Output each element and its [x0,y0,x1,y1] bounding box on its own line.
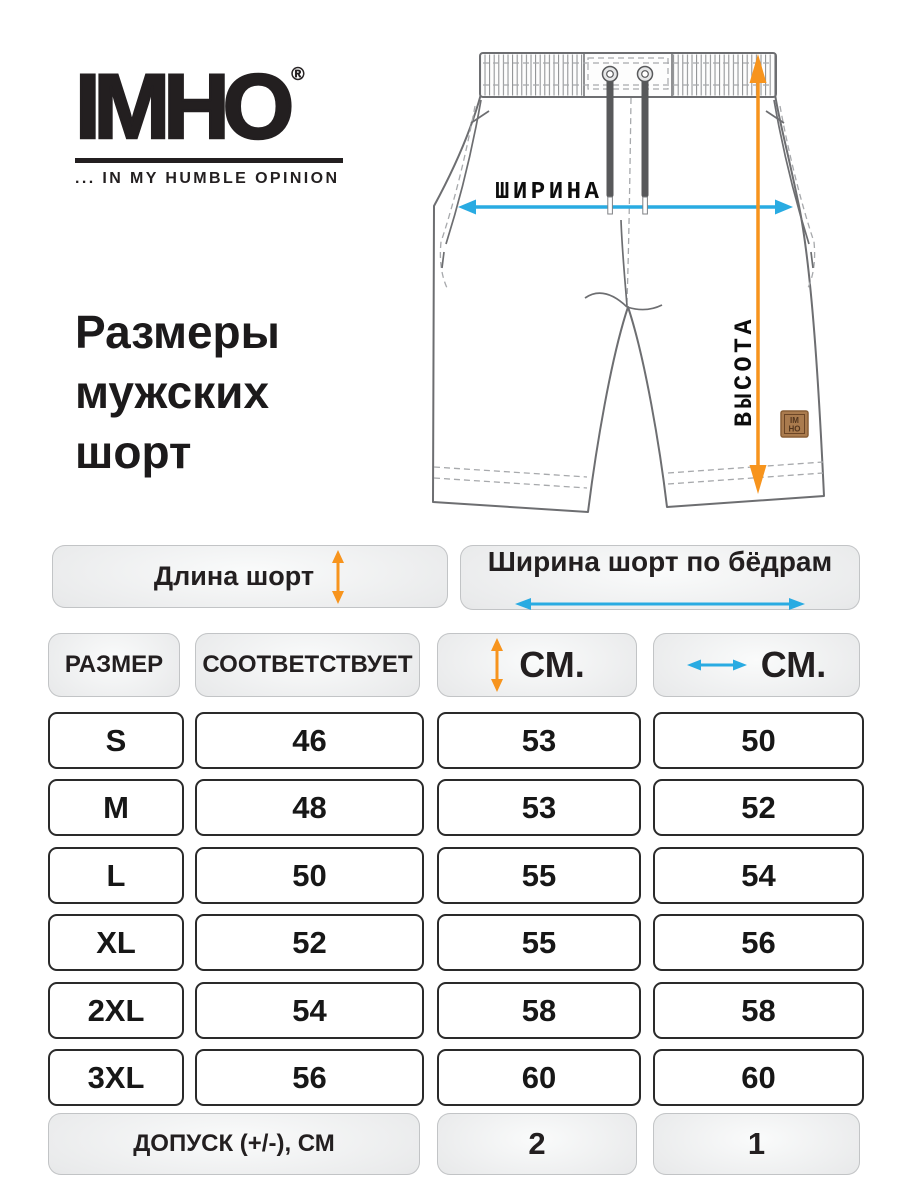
width-cm-cell: 52 [653,779,864,836]
patch-text: HO [789,425,801,434]
width-cm-cell: 56 [653,914,864,971]
corresponds-cell: 54 [195,982,424,1039]
corresponds-cell: 48 [195,779,424,836]
length-cm-cell: 58 [437,982,641,1039]
corresponds-cell: 46 [195,712,424,769]
tolerance-width-cell: 1 [653,1113,860,1175]
size-column-header: РАЗМЕР [48,633,180,697]
horizontal-arrow-icon [687,657,747,673]
width-cm-cell: 58 [653,982,864,1039]
size-cell: M [48,779,184,836]
waistband [480,53,776,97]
length-header-pill: Длина шорт [52,545,448,608]
length-cm-column-label: СМ. [519,644,585,686]
size-cell: XL [48,914,184,971]
drawstring-left [607,78,614,198]
logo-wordmark: IMHO® [75,64,345,151]
width-cm-column-label: СМ. [761,644,827,686]
length-cm-cell: 60 [437,1049,641,1106]
drawstring-right [642,78,649,198]
page-title: Размеры мужских шорт [75,302,280,482]
width-header-pill: Ширина шорт по бёдрам [460,545,860,610]
registered-mark: ® [291,64,304,84]
page-title-line: шорт [75,422,280,482]
corresponds-cell: 52 [195,914,424,971]
length-cm-cell: 55 [437,847,641,904]
tolerance-length-cell: 2 [437,1113,637,1175]
horizontal-arrow-icon [515,596,805,612]
height-label: ВЫСОТА [730,316,759,427]
tolerance-label: ДОПУСК (+/-), СМ [133,1130,335,1158]
width-label: ШИРИНА [495,179,602,206]
brand-patch: IM HO [781,411,808,437]
length-cm-column-header: СМ. [437,633,637,697]
page-title-line: мужских [75,362,280,422]
shorts-body-outline [433,94,824,512]
logo-tagline: ... IN MY HUMBLE OPINION [75,170,345,188]
page-title-line: Размеры [75,302,280,362]
width-cm-cell: 54 [653,847,864,904]
length-header-label: Длина шорт [154,561,314,592]
size-table: Длина шорт Ширина шорт по бёдрам РАЗМЕР … [48,545,860,1177]
size-cell: 2XL [48,982,184,1039]
aglet [643,197,648,214]
size-cell: S [48,712,184,769]
size-cell: L [48,847,184,904]
size-column-label: РАЗМЕР [65,651,163,679]
length-cm-cell: 53 [437,712,641,769]
vertical-arrow-icon [489,638,505,692]
brand-logo: IMHO® ... IN MY HUMBLE OPINION [75,64,345,188]
width-cm-cell: 50 [653,712,864,769]
width-header-label: Ширина шорт по бёдрам [488,546,832,578]
corresponds-cell: 56 [195,1049,424,1106]
size-cell: 3XL [48,1049,184,1106]
length-cm-cell: 55 [437,914,641,971]
length-cm-cell: 53 [437,779,641,836]
aglet [608,197,613,214]
width-cm-column-header: СМ. [653,633,860,697]
waistband-rib-left [481,55,584,96]
logo-underline [75,158,343,163]
corresponds-cell: 50 [195,847,424,904]
corresponds-column-header: СООТВЕТСТВУЕТ [195,633,420,697]
width-cm-cell: 60 [653,1049,864,1106]
size-chart-page: IMHO® ... IN MY HUMBLE OPINION Размеры м… [0,0,900,1200]
shorts-diagram: ШИРИНА IM HO ВЫСОТА [415,30,890,530]
corresponds-column-label: СООТВЕТСТВУЕТ [202,651,412,679]
tolerance-label-pill: ДОПУСК (+/-), СМ [48,1113,420,1175]
logo-text: IMHO [75,56,287,158]
vertical-arrow-icon [330,550,346,604]
